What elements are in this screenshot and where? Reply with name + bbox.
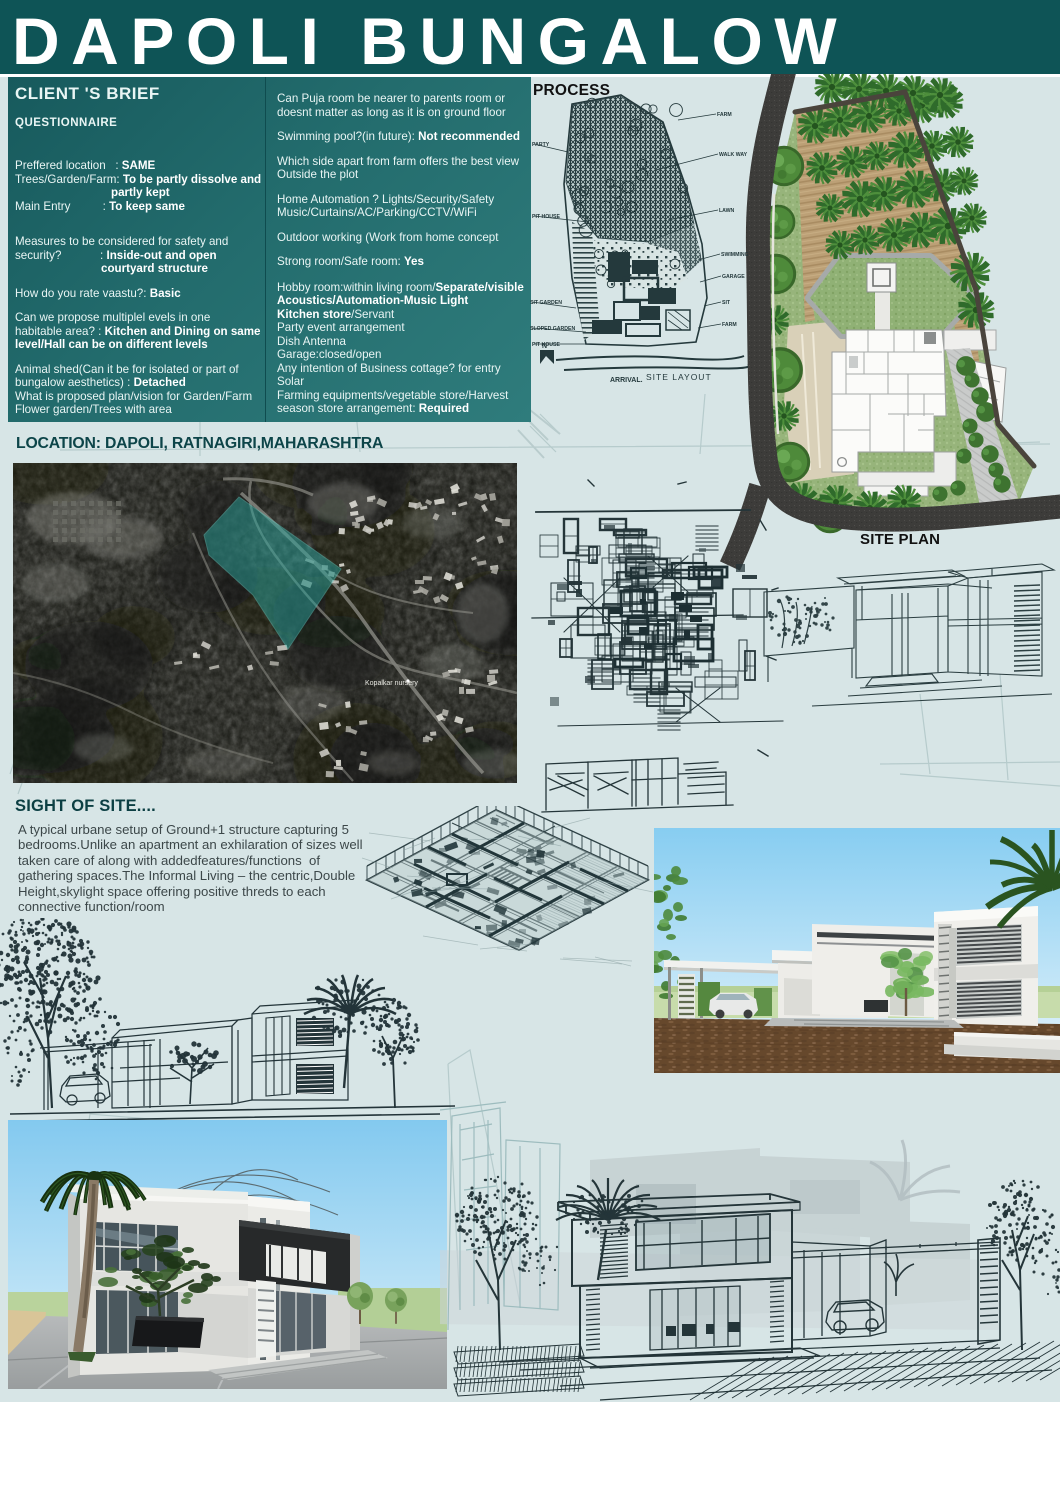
svg-text:PARTY: PARTY xyxy=(532,142,550,148)
svg-text:SIT GARDEN: SIT GARDEN xyxy=(530,300,562,306)
svg-text:SITE LAYOUT: SITE LAYOUT xyxy=(646,372,712,382)
svg-text:SIT: SIT xyxy=(722,300,731,306)
svg-text:FARM: FARM xyxy=(717,112,732,118)
svg-text:GARAGE: GARAGE xyxy=(722,274,745,280)
svg-text:LAWN: LAWN xyxy=(719,208,735,214)
svg-text:PIT HOUSE: PIT HOUSE xyxy=(532,214,560,220)
svg-text:WALK WAY: WALK WAY xyxy=(719,152,748,158)
svg-text:SLOPED GARDEN: SLOPED GARDEN xyxy=(530,326,576,332)
svg-text:Kopalkar nursery: Kopalkar nursery xyxy=(365,680,418,687)
svg-text:SWIMMING: SWIMMING xyxy=(721,252,748,258)
svg-text:ARRIVAL.: ARRIVAL. xyxy=(610,377,643,384)
svg-text:FARM: FARM xyxy=(722,322,737,328)
svg-text:N: N xyxy=(542,343,547,350)
